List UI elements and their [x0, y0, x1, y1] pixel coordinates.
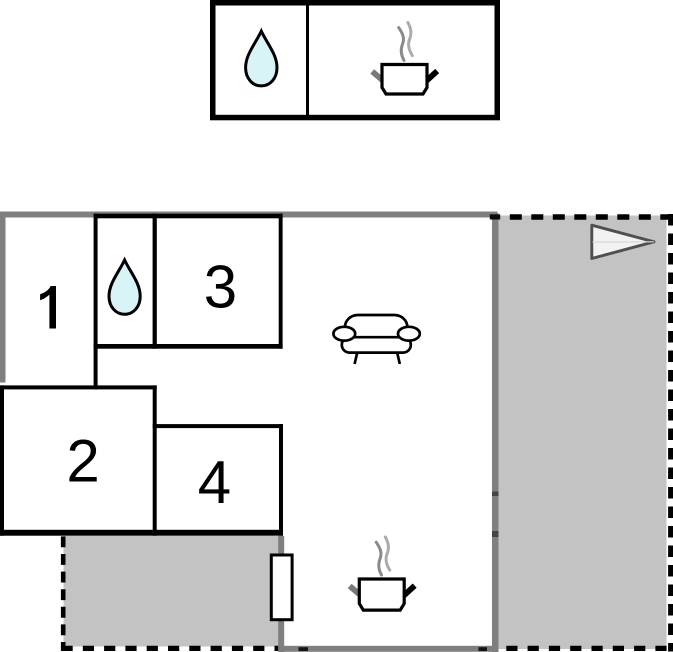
svg-text:4: 4 — [198, 449, 231, 516]
svg-text:3: 3 — [204, 253, 237, 320]
svg-text:2: 2 — [66, 428, 99, 495]
